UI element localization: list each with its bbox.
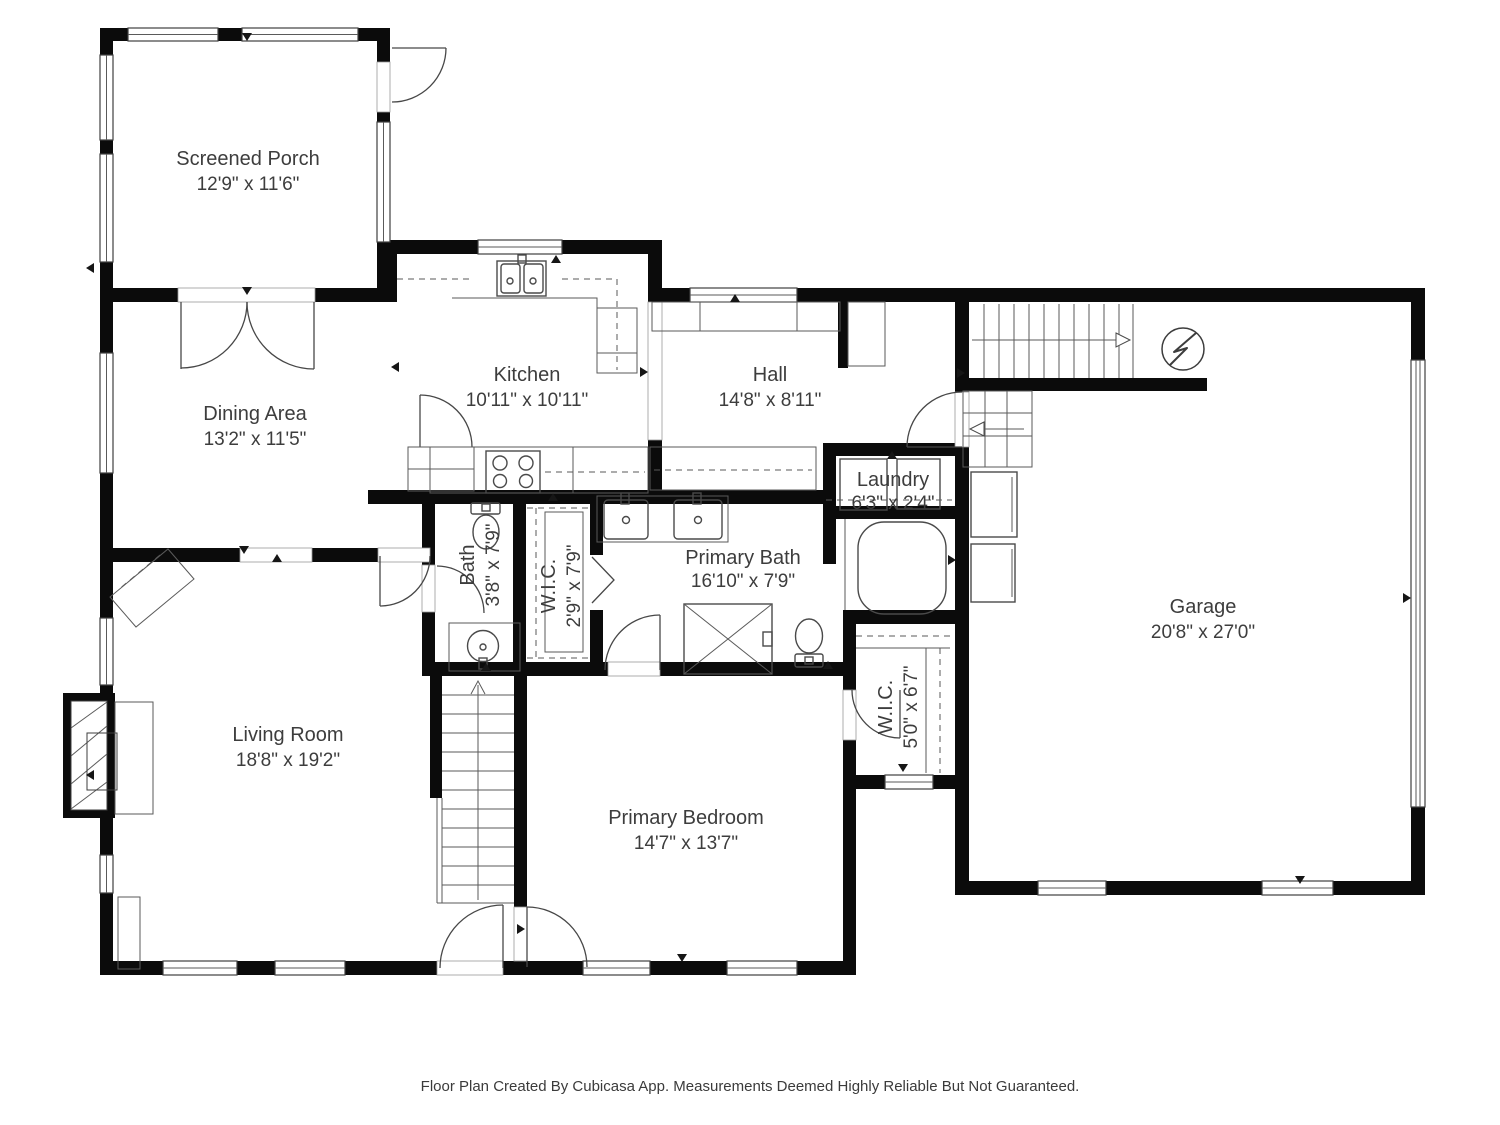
french-door bbox=[181, 302, 314, 369]
window bbox=[1262, 881, 1333, 895]
room-dims: 20'8" x 27'0" bbox=[1151, 620, 1255, 646]
screen-window bbox=[242, 28, 358, 41]
room-label-wic-small: W.I.C. 2'9" x 7'9" bbox=[536, 544, 588, 627]
stairs-main-icon bbox=[437, 681, 514, 903]
room-dims: 16'10" x 7'9" bbox=[685, 570, 801, 593]
room-name: Hall bbox=[719, 362, 822, 388]
room-name: Primary Bath bbox=[685, 547, 801, 570]
closet-bifold-door bbox=[592, 557, 614, 603]
window bbox=[1038, 881, 1106, 895]
room-dims: 3'8" x 7'9" bbox=[481, 523, 507, 606]
bedroom-door bbox=[527, 907, 587, 967]
screen-window bbox=[100, 154, 113, 262]
room-label-living-room: Living Room 18'8" x 19'2" bbox=[232, 722, 343, 774]
window bbox=[690, 288, 797, 302]
hall-garage-door bbox=[907, 392, 962, 447]
room-label-bath: Bath 3'8" x 7'9" bbox=[455, 523, 507, 606]
room-dims: 10'11" x 10'11" bbox=[466, 388, 589, 414]
room-name: Kitchen bbox=[466, 362, 589, 388]
kitchen-sink-icon bbox=[497, 255, 546, 296]
room-dims: 13'2" x 11'5" bbox=[203, 427, 306, 453]
room-label-screened-porch: Screened Porch 12'9" x 11'6" bbox=[176, 146, 319, 198]
room-label-primary-bedroom: Primary Bedroom 14'7" x 13'7" bbox=[608, 805, 764, 857]
front-door bbox=[440, 905, 503, 968]
room-label-hall: Hall 14'8" x 8'11" bbox=[719, 362, 822, 414]
room-name: Living Room bbox=[232, 722, 343, 748]
room-dims: 18'8" x 19'2" bbox=[232, 748, 343, 774]
window bbox=[727, 961, 797, 975]
floor-plan-canvas: Screened Porch 12'9" x 11'6" Dining Area… bbox=[0, 0, 1500, 1125]
room-name: Screened Porch bbox=[176, 146, 319, 172]
window bbox=[583, 961, 650, 975]
screen-window bbox=[128, 28, 218, 41]
window bbox=[478, 240, 562, 254]
stove-icon bbox=[486, 451, 540, 493]
room-name: Laundry bbox=[851, 469, 934, 492]
room-label-wic-primary: W.I.C. 5'0" x 6'7" bbox=[873, 665, 925, 748]
room-label-laundry: Laundry 6'3" x 2'4" bbox=[851, 469, 934, 515]
room-name: W.I.C. bbox=[536, 544, 562, 627]
room-name: Primary Bedroom bbox=[608, 805, 764, 831]
room-dims: 12'9" x 11'6" bbox=[176, 172, 319, 198]
bathtub-icon bbox=[845, 519, 946, 614]
room-name: W.I.C. bbox=[873, 665, 899, 748]
room-dims: 2'9" x 7'9" bbox=[562, 544, 588, 627]
window bbox=[885, 775, 933, 789]
stairs-up-icon bbox=[972, 304, 1133, 378]
room-label-primary-bath: Primary Bath 16'10" x 7'9" bbox=[685, 547, 801, 593]
window bbox=[100, 618, 113, 685]
window bbox=[275, 961, 345, 975]
room-dims: 5'0" x 6'7" bbox=[899, 665, 925, 748]
room-dims: 6'3" x 2'4" bbox=[851, 492, 934, 515]
screen-window bbox=[100, 55, 113, 140]
room-dims: 14'8" x 8'11" bbox=[719, 388, 822, 414]
room-name: Dining Area bbox=[203, 401, 306, 427]
furnace-icon bbox=[971, 544, 1015, 602]
room-name: Garage bbox=[1151, 594, 1255, 620]
stairs-down-icon bbox=[963, 391, 1032, 467]
electrical-panel-icon bbox=[1162, 328, 1204, 370]
room-name: Bath bbox=[455, 523, 481, 606]
shelf bbox=[118, 897, 140, 969]
garage-door bbox=[1411, 360, 1425, 807]
water-heater-icon bbox=[971, 472, 1017, 537]
kitchen-door bbox=[420, 395, 472, 447]
window bbox=[100, 353, 113, 473]
room-label-kitchen: Kitchen 10'11" x 10'11" bbox=[466, 362, 589, 414]
room-label-dining-area: Dining Area 13'2" x 11'5" bbox=[203, 401, 306, 453]
fireplace-icon bbox=[63, 693, 153, 818]
window bbox=[163, 961, 237, 975]
room-label-garage: Garage 20'8" x 27'0" bbox=[1151, 594, 1255, 646]
screen-window bbox=[377, 122, 390, 242]
footer-disclaimer: Floor Plan Created By Cubicasa App. Meas… bbox=[421, 1078, 1080, 1095]
room-dims: 14'7" x 13'7" bbox=[608, 831, 764, 857]
toilet-icon bbox=[795, 619, 823, 667]
window bbox=[100, 855, 113, 893]
porch-exterior-door bbox=[392, 48, 446, 102]
